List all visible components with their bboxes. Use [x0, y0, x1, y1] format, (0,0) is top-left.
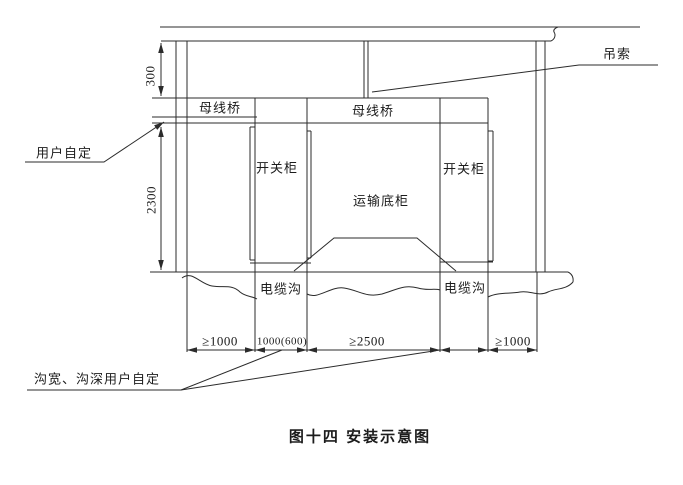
left-cabinet-door-panel: [250, 127, 311, 263]
left-wall-column: [176, 41, 187, 272]
switch-cabinet-right-label: 开关柜: [443, 163, 485, 176]
diagram-linework: [0, 0, 683, 485]
right-cabinet-door-panel: [440, 131, 493, 262]
ground-break-mark: [568, 272, 573, 282]
dim-right-clearance-text: ≥1000: [495, 335, 531, 348]
ground-line: [150, 272, 573, 282]
right-wall-column: [536, 41, 545, 272]
dim-left-trench-text: 1000(600): [257, 337, 307, 348]
cable-trench-left-label: 电缆沟: [260, 283, 302, 296]
dim-center-clearance-text: ≥2500: [349, 335, 385, 348]
cable-entry-ramp: [294, 238, 456, 271]
roof-break-mark: [551, 27, 558, 41]
user-defined-gap-label: 用户自定: [36, 147, 92, 160]
cabinet-and-trench-verticals: [255, 98, 488, 352]
trench-note-label: 沟宽、沟深用户自定: [34, 373, 160, 386]
sling-label: 吊索: [603, 48, 631, 61]
busbar-bridge-left-label: 母线桥: [199, 102, 241, 115]
roof-beam: [160, 27, 640, 41]
ground-waves: [182, 276, 573, 299]
transport-base-cabinet-label: 运输底柜: [353, 195, 409, 208]
transport-cabinet-panel: [307, 131, 311, 258]
dim-300-text: 300: [144, 66, 157, 87]
cable-trench-right-label: 电缆沟: [444, 282, 486, 295]
figure-caption: 图十四 安装示意图: [289, 430, 431, 445]
switch-cabinet-left-label: 开关柜: [256, 162, 298, 175]
sling-hanger: [364, 41, 368, 98]
sling-leader: [372, 65, 658, 92]
dim-2300-text: 2300: [145, 186, 158, 214]
dim-left-clearance-text: ≥1000: [202, 335, 238, 348]
busbar-bridge-right-label: 母线桥: [352, 105, 394, 118]
installation-diagram: 吊索 母线桥 母线桥 开关柜 开关柜 运输底柜 电缆沟 电缆沟 用户自定 沟宽、…: [0, 0, 683, 485]
